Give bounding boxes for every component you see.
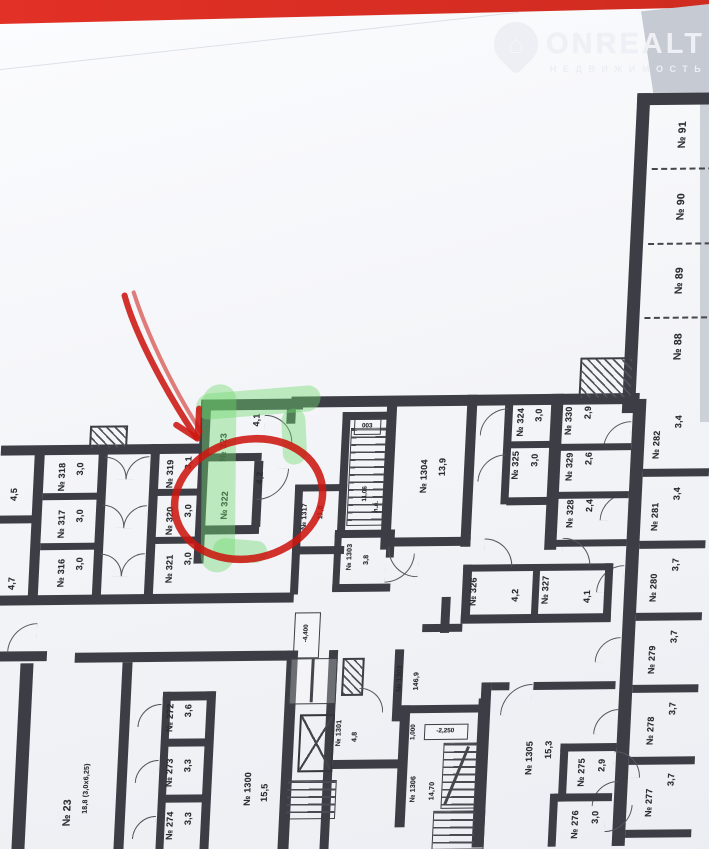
red-arrow-second-stroke xyxy=(127,292,208,433)
photo-of-floorplan: ⌂ ONREALT НЕДВИЖИМОСТЬ № 91 № 90 № 89 № … xyxy=(0,0,709,849)
green-highlighter-marks xyxy=(202,398,308,555)
hand-annotations xyxy=(0,0,709,849)
floorplan: № 91 № 90 № 89 № 88 № 282 3,4 № 281 3,4 … xyxy=(0,0,709,849)
